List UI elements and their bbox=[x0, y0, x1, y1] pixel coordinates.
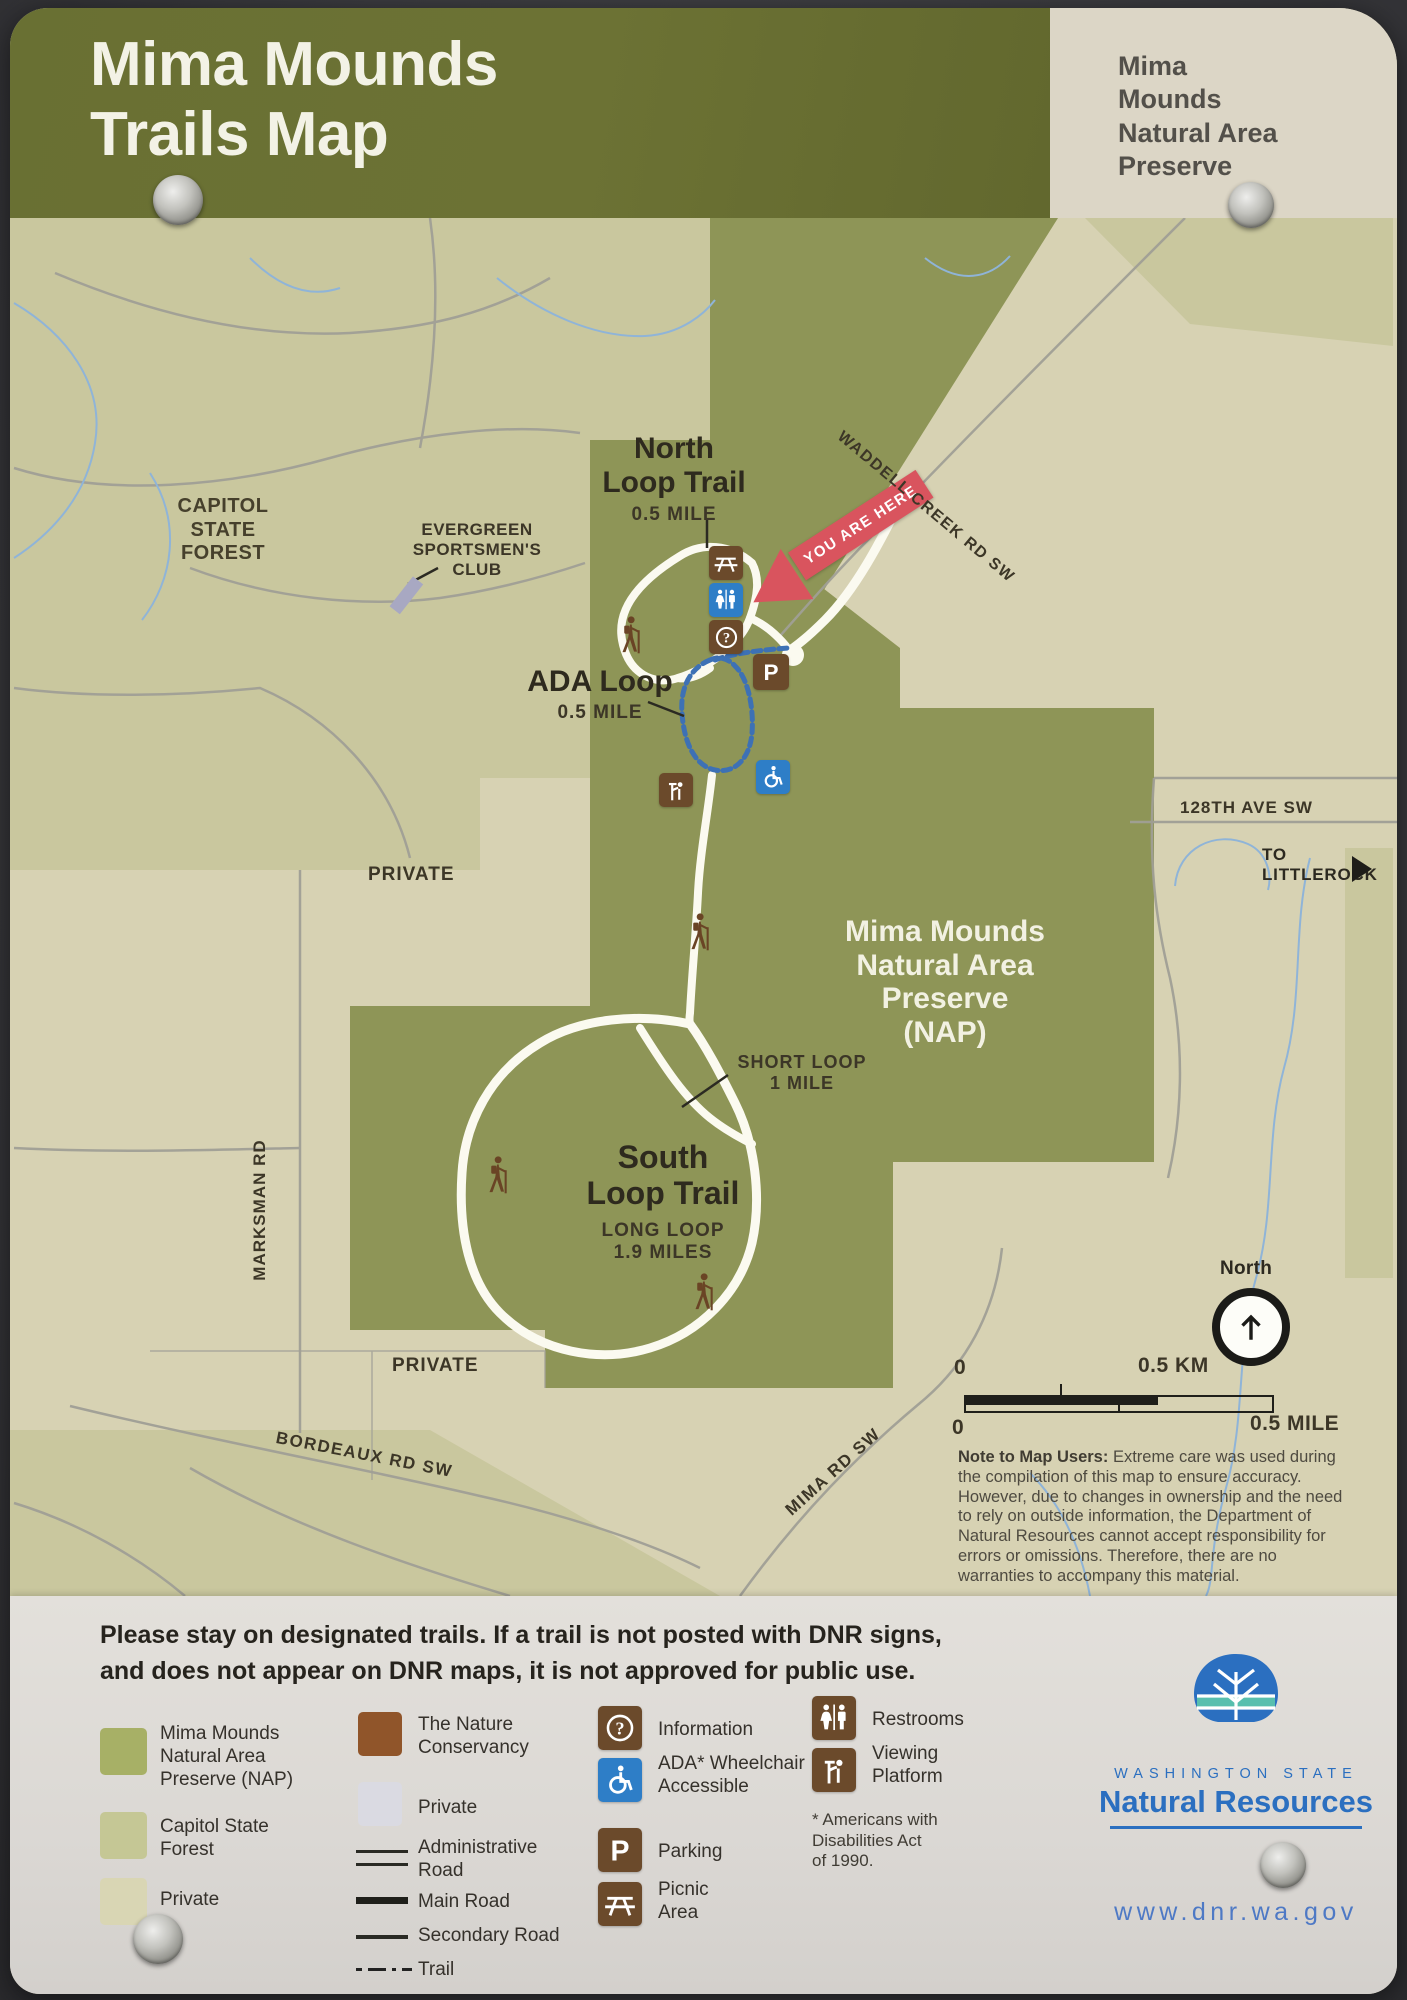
svg-text:?: ? bbox=[615, 1719, 624, 1739]
legend-label-wheelchair: ADA* Wheelchair Accessible bbox=[658, 1752, 805, 1798]
legend-label-restrooms: Restrooms bbox=[872, 1708, 964, 1731]
photo-background: Mima Mounds Trails Map Mima Mounds Natur… bbox=[0, 0, 1407, 2000]
legend-label-secondary-road: Secondary Road bbox=[418, 1924, 560, 1947]
restrooms-icon bbox=[709, 583, 743, 617]
agency-name: Natural Resources bbox=[1086, 1784, 1386, 1820]
picnic-area-icon bbox=[709, 546, 743, 580]
mounting-bolt bbox=[153, 175, 203, 225]
trail-sign-board: Mima Mounds Trails Map Mima Mounds Natur… bbox=[10, 8, 1397, 1994]
main-road-symbol bbox=[356, 1897, 408, 1904]
scale-zero-km: 0 bbox=[954, 1356, 966, 1381]
legend-label-private: Private bbox=[160, 1888, 219, 1911]
capitol-forest-label: CAPITOL STATE FOREST bbox=[148, 495, 298, 566]
hiker-icon bbox=[615, 615, 645, 657]
mounting-bolt bbox=[1260, 1842, 1306, 1888]
map-note-title: Note to Map Users: bbox=[958, 1448, 1108, 1466]
north-loop-distance: 0.5 MILE bbox=[584, 504, 764, 526]
legend-swatch-conservancy bbox=[358, 1712, 402, 1756]
agency-underline bbox=[1110, 1826, 1362, 1829]
legend-label-picnic: Picnic Area bbox=[658, 1878, 709, 1924]
corner-label: Mima Mounds Natural Area Preserve bbox=[1118, 50, 1278, 184]
dnr-logo bbox=[1188, 1652, 1284, 1744]
private-lower-label: PRIVATE bbox=[392, 1355, 479, 1377]
littlerock-arrow-icon bbox=[1352, 856, 1372, 882]
legend-swatch-nap bbox=[100, 1728, 147, 1775]
legend-swatch-capitol bbox=[100, 1812, 147, 1859]
private-upper-label: PRIVATE bbox=[368, 864, 455, 886]
trail-notice: Please stay on designated trails. If a t… bbox=[100, 1618, 942, 1689]
hiker-icon bbox=[684, 912, 714, 954]
map-graphic bbox=[10, 218, 1397, 1596]
parking-icon: P bbox=[753, 654, 789, 690]
dnr-website: www.dnr.wa.gov bbox=[1086, 1898, 1386, 1927]
legend-label-viewing: Viewing Platform bbox=[872, 1742, 943, 1788]
north-compass bbox=[1212, 1288, 1290, 1366]
north-loop-label: North Loop Trail bbox=[584, 432, 764, 499]
wheelchair-accessible-icon bbox=[756, 760, 790, 794]
legend-label-information: Information bbox=[658, 1718, 753, 1741]
legend-label-parking: Parking bbox=[658, 1840, 722, 1863]
ada-loop-label: ADA Loop bbox=[520, 664, 680, 699]
evergreen-club-label: EVERGREEN SPORTSMEN'S CLUB bbox=[392, 520, 562, 580]
ada-footnote: * Americans with Disabilities Act of 199… bbox=[812, 1810, 938, 1872]
legend-swatch-private bbox=[100, 1878, 147, 1925]
128th-ave-label: 128TH AVE SW bbox=[1180, 798, 1313, 818]
legend-panel: Please stay on designated trails. If a t… bbox=[10, 1596, 1397, 1994]
south-loop-label: South Loop Trail bbox=[563, 1140, 763, 1212]
legend-picnic-icon bbox=[598, 1882, 642, 1926]
short-loop-label: SHORT LOOP 1 MILE bbox=[712, 1052, 892, 1094]
marksman-rd-label: MARKSMAN RD bbox=[250, 1130, 270, 1290]
legend-parking-icon: P bbox=[598, 1828, 642, 1872]
legend-information-icon: ? bbox=[598, 1706, 642, 1750]
map-note-body: Extreme care was used during the compila… bbox=[958, 1448, 1342, 1585]
svg-text:?: ? bbox=[722, 630, 729, 646]
map-note: Note to Map Users: Extreme care was used… bbox=[958, 1448, 1354, 1587]
sign-title: Mima Mounds Trails Map bbox=[90, 30, 498, 170]
secondary-road-symbol bbox=[356, 1935, 408, 1939]
legend-label-nap: Mima Mounds Natural Area Preserve (NAP) bbox=[160, 1722, 293, 1792]
ada-loop-distance: 0.5 MILE bbox=[520, 702, 680, 724]
south-loop-distance: LONG LOOP 1.9 MILES bbox=[563, 1220, 763, 1265]
svg-text:P: P bbox=[763, 660, 778, 685]
legend-label-trail: Trail bbox=[418, 1958, 454, 1981]
legend-restrooms-icon bbox=[812, 1696, 856, 1740]
legend-label-main-road: Main Road bbox=[418, 1890, 510, 1913]
agency-state: WASHINGTON STATE bbox=[1086, 1766, 1386, 1782]
svg-text:P: P bbox=[610, 1835, 629, 1867]
legend-viewing-icon bbox=[812, 1748, 856, 1792]
viewing-platform-icon bbox=[659, 773, 693, 807]
hiker-icon bbox=[482, 1155, 512, 1197]
admin-road-symbol bbox=[356, 1850, 408, 1866]
legend-label-capitol: Capitol State Forest bbox=[160, 1815, 269, 1861]
mounting-bolt bbox=[1228, 182, 1274, 228]
legend-swatch-private2 bbox=[358, 1782, 402, 1826]
scale-mile: 0.5 MILE bbox=[1250, 1412, 1339, 1437]
legend-label-private2: Private bbox=[418, 1796, 477, 1819]
north-arrow-icon bbox=[1234, 1310, 1268, 1344]
trail-symbol bbox=[356, 1968, 412, 1971]
mounting-bolt bbox=[133, 1914, 183, 1964]
information-icon: ? bbox=[709, 620, 743, 654]
nap-area-label: Mima Mounds Natural Area Preserve (NAP) bbox=[840, 915, 1050, 1049]
legend-wheelchair-icon bbox=[598, 1758, 642, 1802]
scale-zero-mile: 0 bbox=[952, 1416, 964, 1441]
north-compass-label: North bbox=[1220, 1258, 1272, 1280]
hiker-icon bbox=[688, 1272, 718, 1314]
legend-label-conservancy: The Nature Conservancy bbox=[418, 1713, 529, 1759]
to-littlerock-label: TO LITTLEROCK bbox=[1262, 845, 1397, 885]
scale-km: 0.5 KM bbox=[1138, 1354, 1209, 1379]
legend-label-admin-road: Administrative Road bbox=[418, 1836, 537, 1882]
